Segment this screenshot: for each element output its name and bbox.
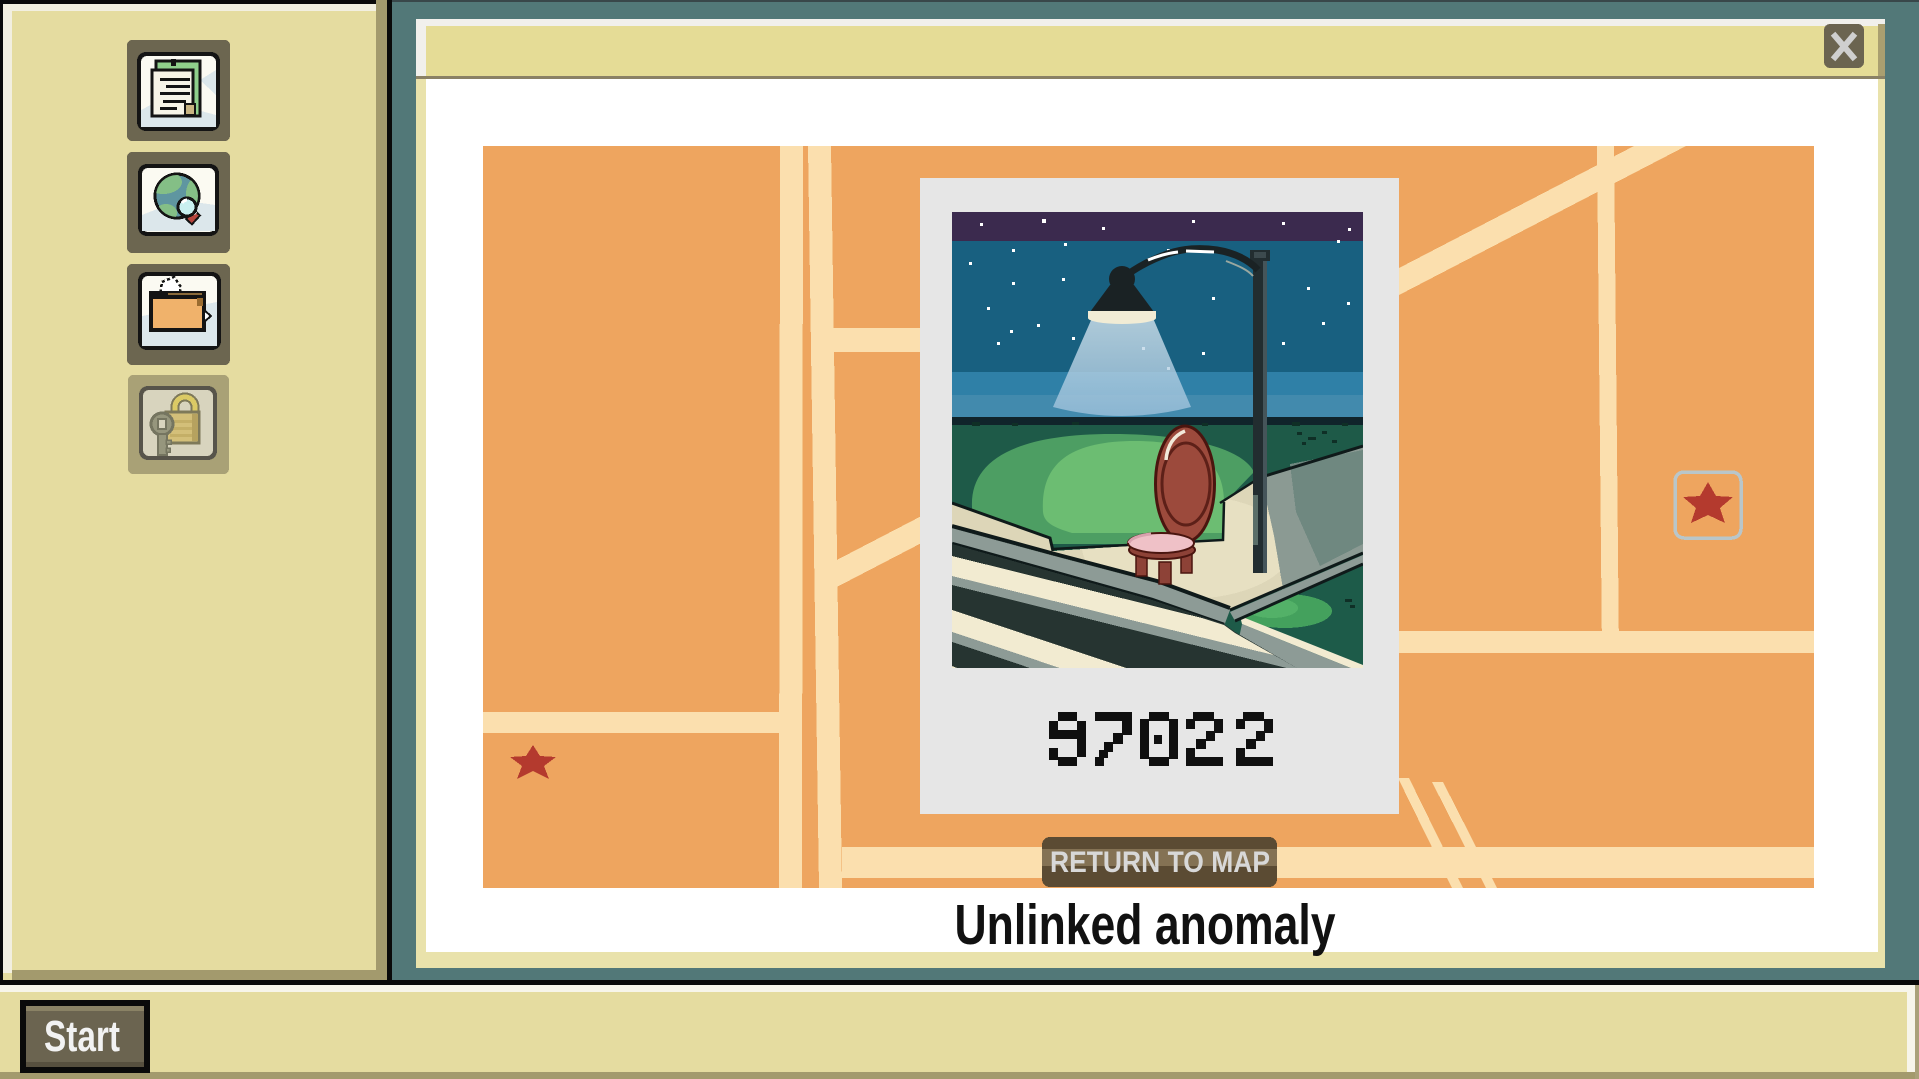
- svg-text:Unlinked anomaly: Unlinked anomaly: [955, 893, 1336, 957]
- svg-text:RETURN TO MAP: RETURN TO MAP: [1050, 846, 1270, 879]
- svg-text:Start: Start: [44, 1012, 120, 1061]
